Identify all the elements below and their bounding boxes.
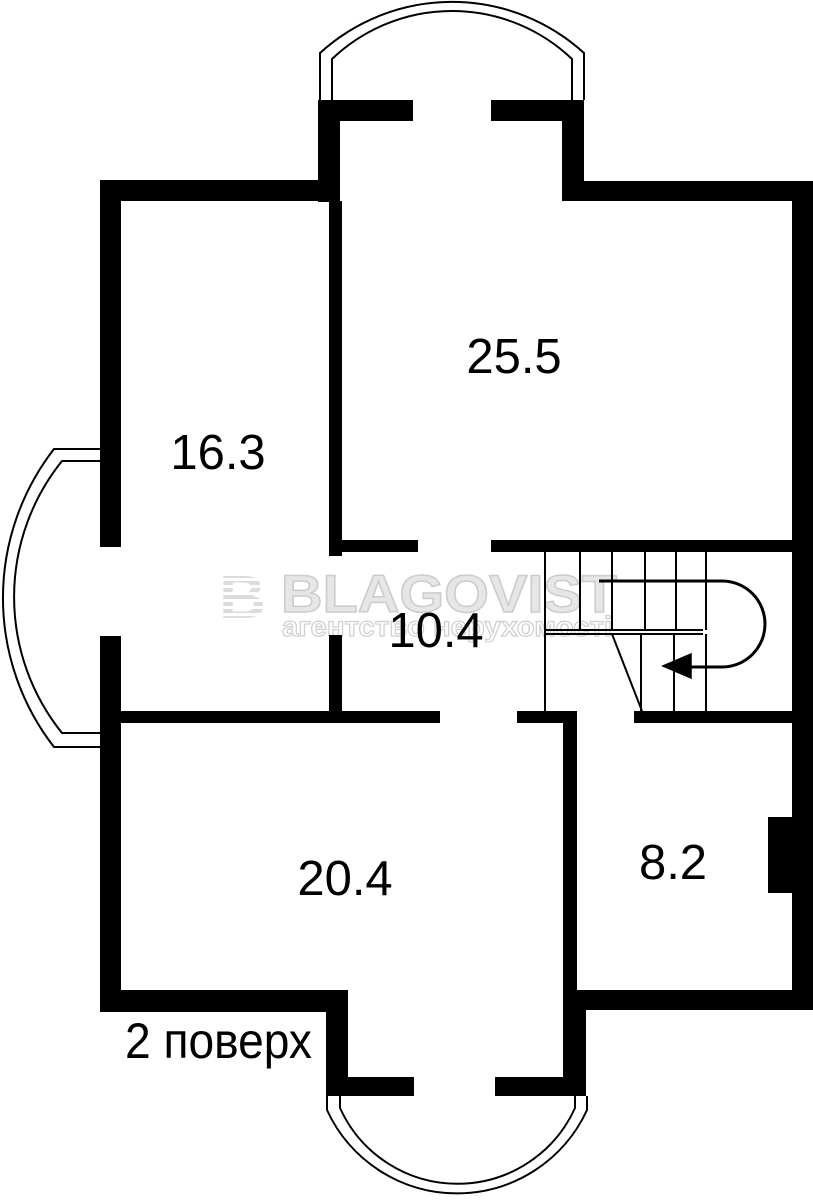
svg-text:16.3: 16.3: [170, 426, 265, 480]
svg-text:2 поверх: 2 поверх: [125, 1013, 312, 1069]
svg-text:8.2: 8.2: [639, 836, 707, 890]
svg-text:B: B: [219, 563, 266, 631]
svg-text:10.4: 10.4: [388, 604, 483, 658]
svg-text:25.5: 25.5: [466, 330, 561, 384]
svg-text:20.4: 20.4: [297, 852, 392, 906]
